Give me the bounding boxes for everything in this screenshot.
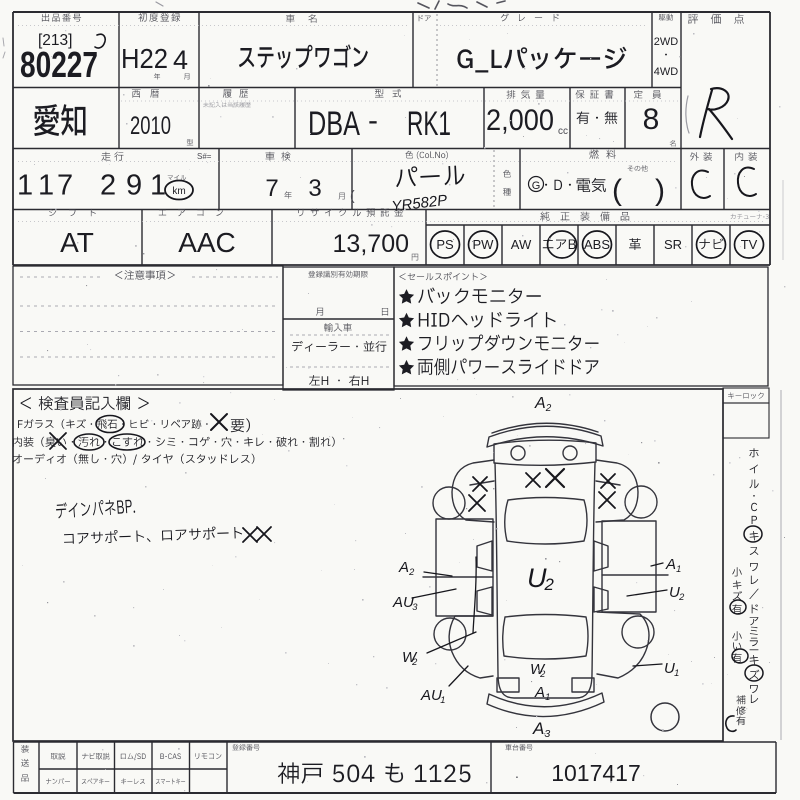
svg-text:3: 3 — [412, 602, 418, 612]
svg-text:): ) — [655, 174, 665, 207]
svg-text:7: 7 — [265, 175, 278, 202]
svg-text:1: 1 — [150, 170, 166, 202]
svg-text:2WD: 2WD — [654, 36, 679, 48]
svg-text:.: . — [515, 765, 519, 781]
svg-text:9: 9 — [126, 170, 142, 202]
svg-text:A: A — [534, 684, 545, 701]
svg-text:AU: AU — [420, 687, 442, 704]
svg-text:13,700: 13,700 — [333, 230, 409, 258]
svg-text:2: 2 — [678, 592, 685, 602]
svg-text:2: 2 — [543, 575, 554, 594]
svg-text:1: 1 — [17, 170, 33, 202]
svg-text:1: 1 — [38, 170, 54, 202]
svg-text:2: 2 — [100, 170, 116, 202]
svg-text:G: G — [532, 180, 541, 192]
svg-text:RK1: RK1 — [407, 105, 451, 143]
svg-text:1: 1 — [440, 695, 445, 705]
svg-text:2: 2 — [545, 403, 552, 414]
svg-text:A: A — [534, 395, 546, 412]
svg-text:cc: cc — [558, 126, 568, 137]
svg-text:PS: PS — [436, 237, 454, 252]
svg-text:DBA: DBA — [308, 105, 360, 143]
svg-text:80227: 80227 — [20, 44, 98, 85]
svg-text:km: km — [172, 186, 185, 197]
svg-text:1: 1 — [545, 692, 550, 702]
svg-text:ABS: ABS — [584, 237, 610, 252]
svg-text:A: A — [398, 559, 409, 576]
svg-text:2: 2 — [408, 567, 415, 577]
svg-text:2010: 2010 — [130, 112, 171, 140]
svg-text:(: ( — [612, 174, 622, 207]
svg-text:4: 4 — [173, 45, 188, 75]
svg-text:2: 2 — [411, 657, 418, 667]
svg-text:SR: SR — [664, 237, 682, 252]
svg-text:AW: AW — [511, 237, 532, 252]
svg-text:3: 3 — [308, 175, 321, 202]
svg-text:-: - — [368, 104, 378, 137]
svg-text:AAC: AAC — [178, 227, 236, 258]
svg-text:(: ( — [350, 187, 355, 203]
svg-text:1017417: 1017417 — [551, 760, 641, 786]
svg-text:4WD: 4WD — [654, 66, 679, 78]
svg-text:・: ・ — [661, 50, 670, 60]
svg-text:PW: PW — [473, 237, 495, 252]
svg-text:7: 7 — [57, 170, 73, 202]
svg-text:AU: AU — [392, 594, 414, 611]
svg-text:1: 1 — [674, 668, 679, 678]
svg-text:S#=: S#= — [197, 152, 212, 161]
svg-text:A: A — [665, 556, 676, 573]
svg-text:A: A — [532, 719, 544, 738]
svg-text:8: 8 — [643, 103, 660, 136]
svg-text:2,000: 2,000 — [486, 104, 554, 137]
svg-text:H22: H22 — [121, 43, 168, 74]
svg-text:TV: TV — [741, 237, 758, 252]
svg-text:1: 1 — [676, 564, 681, 574]
